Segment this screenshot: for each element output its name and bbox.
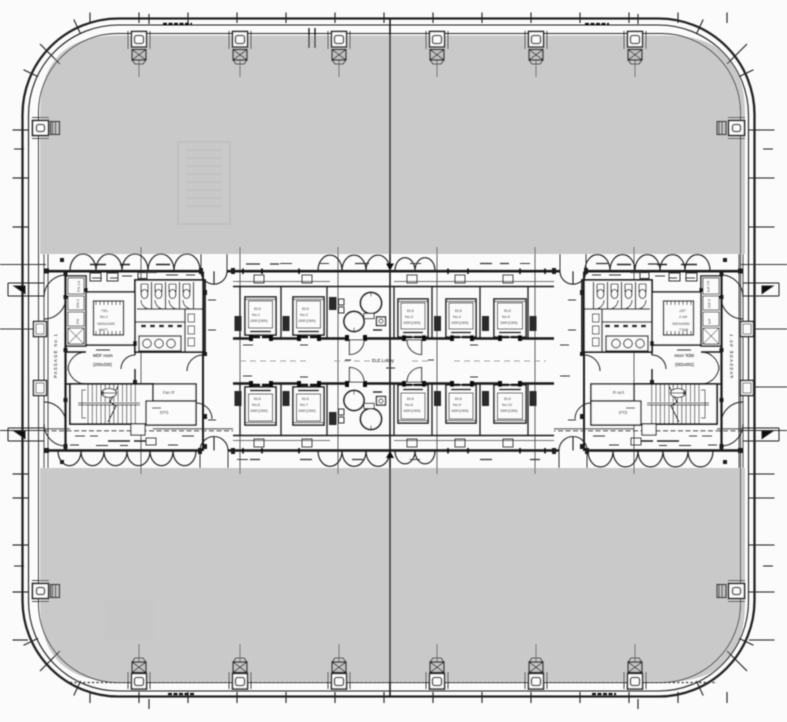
svg-text:No.8: No.8 bbox=[405, 403, 413, 407]
svg-text:1600x2300: 1600x2300 bbox=[97, 322, 115, 326]
svg-text:150F(2300): 150F(2300) bbox=[298, 319, 316, 323]
svg-text:ELE: ELE bbox=[407, 397, 415, 401]
svg-text:No.2: No.2 bbox=[300, 313, 308, 317]
svg-text:ELE: ELE bbox=[254, 307, 262, 311]
svg-text:150F(2300): 150F(2300) bbox=[451, 409, 469, 413]
svg-text:150F(2300): 150F(2300) bbox=[403, 409, 421, 413]
svg-text:No.9: No.9 bbox=[453, 403, 461, 407]
svg-text:ELE: ELE bbox=[407, 309, 415, 313]
svg-text:ELE: ELE bbox=[254, 397, 262, 401]
svg-text:No.6: No.6 bbox=[252, 403, 260, 407]
svg-text:No.7: No.7 bbox=[300, 403, 308, 407]
svg-text:ELE: ELE bbox=[302, 397, 310, 401]
svg-text:MDF room: MDF room bbox=[674, 353, 694, 358]
svg-text:Fan R: Fan R bbox=[613, 390, 624, 395]
svg-text:Fan R: Fan R bbox=[163, 390, 174, 395]
svg-text:BATT: BATT bbox=[99, 328, 109, 332]
svg-text:ELE: ELE bbox=[455, 309, 463, 313]
svg-text:ELE.Lobby: ELE.Lobby bbox=[372, 358, 395, 363]
svg-text:TEL: TEL bbox=[678, 308, 686, 313]
svg-text:No.1: No.1 bbox=[100, 315, 108, 319]
svg-text:No.1: No.1 bbox=[679, 315, 687, 319]
svg-text:150F(2300): 150F(2300) bbox=[403, 321, 421, 325]
svg-text:150F(2300): 150F(2300) bbox=[451, 321, 469, 325]
svg-text:ELE: ELE bbox=[302, 307, 310, 311]
svg-text:No.10: No.10 bbox=[502, 403, 512, 407]
svg-text:ELE: ELE bbox=[504, 309, 512, 313]
svg-text:ELE: ELE bbox=[455, 397, 463, 401]
svg-text:No.1: No.1 bbox=[252, 313, 260, 317]
svg-text:EPS: EPS bbox=[618, 410, 627, 415]
svg-text:BATT: BATT bbox=[678, 328, 688, 332]
svg-text:PS: PS bbox=[707, 318, 712, 324]
svg-text:(200x330): (200x330) bbox=[93, 362, 112, 367]
svg-text:ELE: ELE bbox=[504, 397, 512, 401]
svg-text:No.5: No.5 bbox=[502, 315, 510, 319]
svg-text:150F(2300): 150F(2300) bbox=[250, 319, 268, 323]
svg-text:150F(2300): 150F(2300) bbox=[298, 409, 316, 413]
svg-text:PS-14: PS-14 bbox=[76, 280, 81, 292]
svg-text:EPS: EPS bbox=[160, 410, 169, 415]
svg-text:PS: PS bbox=[75, 318, 80, 324]
svg-text:150F(2300): 150F(2300) bbox=[250, 409, 268, 413]
svg-text:150F(2300): 150F(2300) bbox=[500, 409, 518, 413]
svg-text:DS-1: DS-1 bbox=[75, 298, 80, 308]
svg-text:(200x330): (200x330) bbox=[675, 362, 694, 367]
svg-text:No.3: No.3 bbox=[405, 315, 413, 319]
svg-text:PS-14: PS-14 bbox=[706, 280, 711, 292]
svg-text:MDF room: MDF room bbox=[93, 353, 113, 358]
svg-text:TEL: TEL bbox=[101, 308, 109, 313]
svg-text:1600x2300: 1600x2300 bbox=[672, 322, 690, 326]
svg-text:DS-1: DS-1 bbox=[707, 298, 712, 308]
svg-text:150F(2300): 150F(2300) bbox=[500, 321, 518, 325]
svg-text:No.4: No.4 bbox=[453, 315, 461, 319]
